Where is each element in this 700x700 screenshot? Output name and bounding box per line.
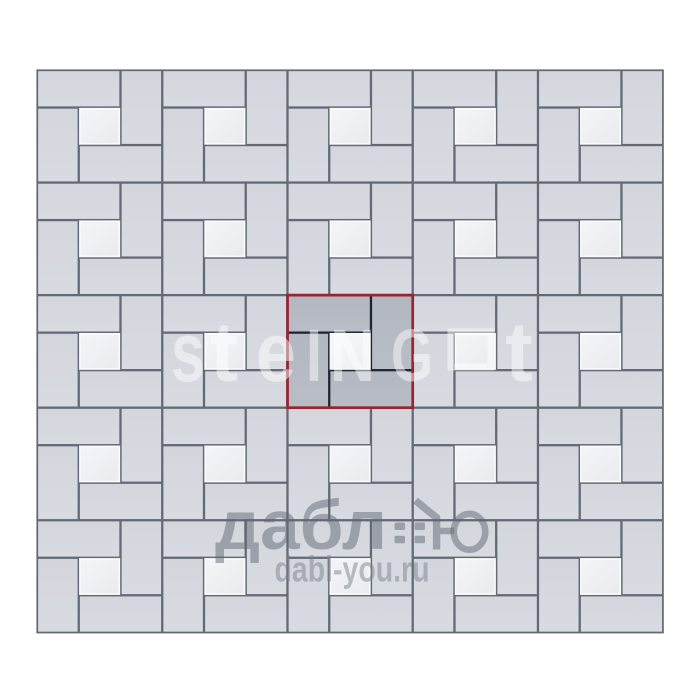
svg-text:N: N — [330, 314, 375, 397]
svg-text:e: e — [256, 305, 296, 399]
svg-text:I: I — [306, 314, 322, 397]
svg-text:dabl-you.ru: dabl-you.ru — [275, 549, 430, 590]
svg-text:t: t — [210, 305, 238, 399]
svg-text:G: G — [391, 314, 433, 397]
svg-text:t: t — [505, 305, 533, 399]
svg-text:s: s — [171, 305, 205, 399]
